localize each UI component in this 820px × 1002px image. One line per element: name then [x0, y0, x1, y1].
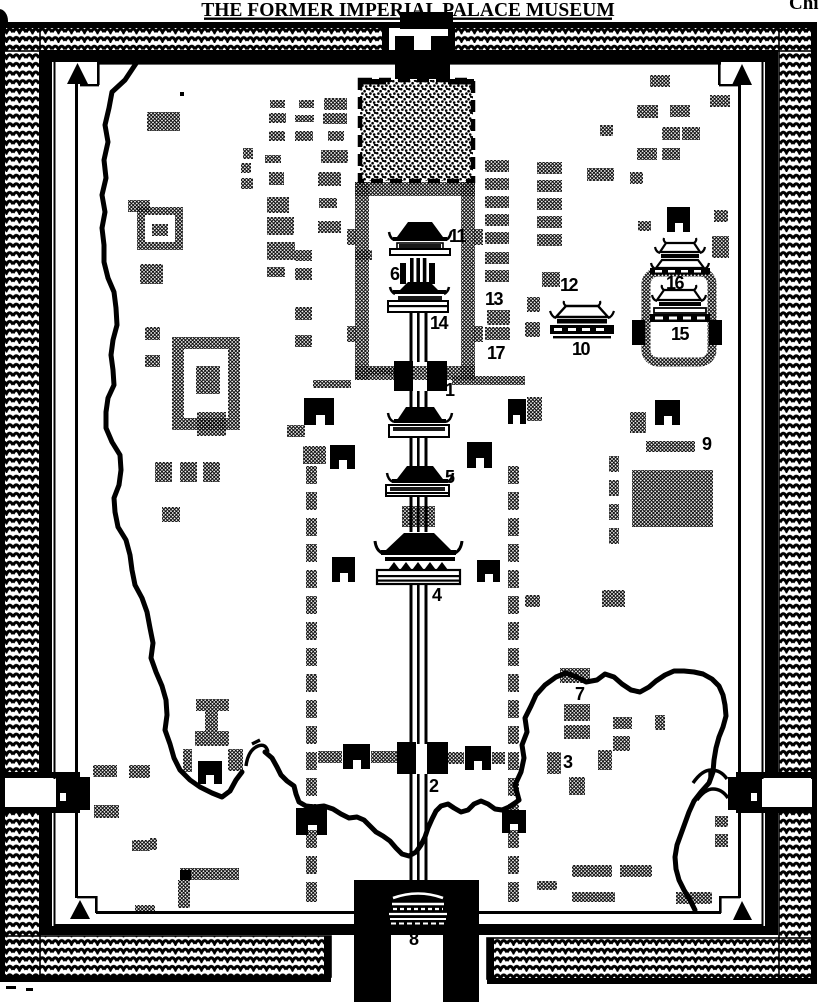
svg-text:7: 7 [575, 684, 585, 704]
svg-text:11: 11 [449, 226, 467, 246]
svg-text:10: 10 [572, 339, 591, 359]
svg-text:4: 4 [432, 585, 442, 605]
svg-text:13: 13 [485, 289, 504, 309]
svg-text:9: 9 [702, 434, 712, 454]
svg-text:14: 14 [430, 313, 449, 333]
svg-text:1: 1 [445, 380, 455, 400]
svg-text:2: 2 [429, 776, 439, 796]
svg-text:6: 6 [390, 264, 400, 284]
svg-text:Chi: Chi [789, 0, 819, 14]
svg-text:16: 16 [666, 273, 685, 293]
svg-text:17: 17 [487, 343, 506, 363]
svg-text:3: 3 [563, 752, 573, 772]
svg-text:5: 5 [445, 467, 455, 487]
svg-text:15: 15 [671, 324, 690, 344]
svg-text:8: 8 [409, 929, 419, 949]
svg-text:12: 12 [560, 275, 579, 295]
